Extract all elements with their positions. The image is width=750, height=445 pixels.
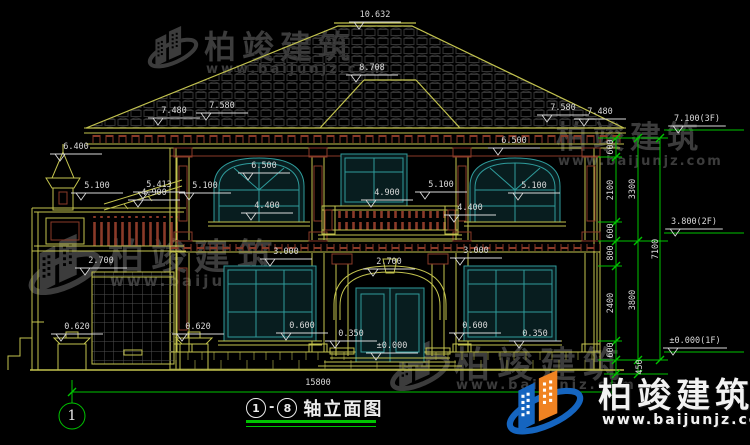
title-underline-thin — [246, 426, 376, 427]
entrance — [318, 254, 462, 366]
axis-to-circle: 8 — [277, 398, 297, 418]
watermark-brand: 柏竣建筑 — [598, 368, 750, 417]
axis-from-circle: 1 — [246, 398, 266, 418]
balcony-and-center-window — [318, 154, 462, 239]
watermark-url: www.baijunjz.com — [602, 412, 750, 428]
title-underline — [246, 420, 376, 423]
baijun-logo-color-icon — [504, 364, 586, 445]
title-dash: - — [269, 400, 274, 415]
left-annex — [8, 144, 212, 370]
eave-cornice — [84, 128, 626, 156]
drawing-title: 1 - 8 轴立面图 — [246, 395, 383, 421]
cad-elevation-canvas: 柏竣建筑 www.baijunjz.com 柏竣建筑 www.baijunjz.… — [0, 0, 750, 445]
axis-bubble-label: 1 — [68, 408, 77, 424]
roof — [86, 23, 624, 128]
title-text: 轴立面图 — [303, 395, 383, 421]
